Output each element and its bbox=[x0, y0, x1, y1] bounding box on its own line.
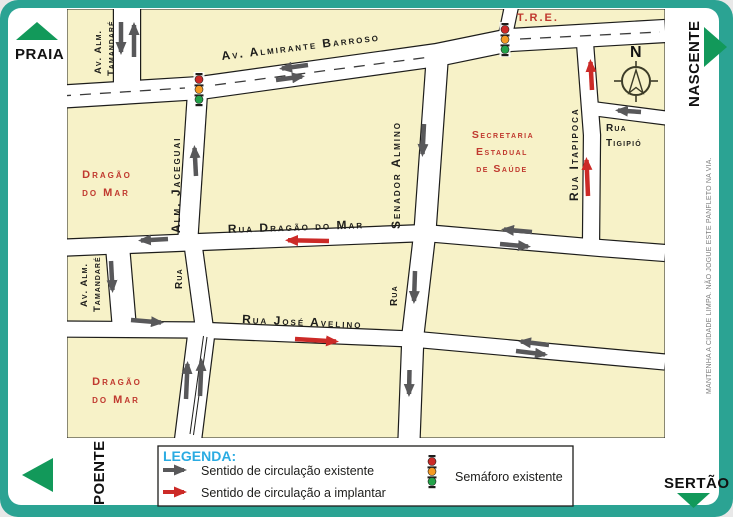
arrow-almino-mid-down-icon bbox=[414, 271, 415, 301]
legend-item-implant: Sentido de circulação a implantar bbox=[201, 486, 386, 500]
arrow-dragao-west-left-icon bbox=[141, 239, 168, 241]
arrow-tigipio-left-icon bbox=[618, 111, 641, 113]
arrow-dragao-east-left-icon bbox=[504, 230, 532, 233]
arrow-itapipoca-red-up2-icon bbox=[587, 160, 589, 196]
street-label-jaceguai: Alm. Jaceguai bbox=[169, 137, 183, 233]
map-canvas: N Av. Almirante Barroso Rua Dragão do Ma… bbox=[0, 0, 733, 517]
place-label-dragao-sul-1: Dragão bbox=[92, 376, 142, 388]
arrow-jaceguai-up-icon bbox=[195, 148, 197, 176]
margin-note: MANTENHA A CIDADE LIMPA. NÃO JOGUE ESTE … bbox=[704, 157, 713, 394]
street-label-tigipio-1: Rua bbox=[606, 123, 627, 134]
place-label-secretaria-2: Estadual bbox=[476, 146, 528, 158]
legend-title: LEGENDA: bbox=[163, 448, 236, 464]
place-label-secretaria-1: Secretaria bbox=[472, 129, 534, 141]
street-label-tamandare-mid-2: Tamandaré bbox=[92, 256, 103, 312]
arrow-itapipoca-red-up1-icon bbox=[591, 62, 593, 90]
arrow-divided-up-left-icon bbox=[186, 364, 188, 399]
street-label-almino-rua: Rua bbox=[389, 285, 400, 306]
traffic-light-icon bbox=[194, 72, 205, 107]
place-label-dragao-sul-2: do Mar bbox=[92, 394, 140, 406]
arrow-divided-up-right-icon bbox=[200, 361, 202, 396]
arrow-avelino-red-right-icon bbox=[295, 339, 336, 342]
street-label-jaceguai-rua: Rua bbox=[174, 268, 185, 289]
direction-label-sertao: SERTÃO bbox=[664, 474, 730, 492]
traffic-light-icon bbox=[500, 22, 511, 57]
street-label-senador-almino: Senador Almino bbox=[389, 121, 403, 229]
legend-item-semaforo: Semáforo existente bbox=[455, 470, 563, 484]
direction-label-poente: POENTE bbox=[91, 440, 108, 505]
street-label-tigipio-2: Tigipió bbox=[606, 138, 642, 149]
place-label-dragao-norte-1: Dragão bbox=[82, 169, 132, 181]
street-label-tamandare-mid-1: Av. Alm. bbox=[79, 263, 90, 307]
compass-north-label: N bbox=[630, 44, 642, 61]
arrow-dragao-red-left-icon bbox=[288, 240, 329, 241]
street-label-tamandare-top-2: Tamandaré bbox=[106, 20, 117, 76]
street-label-itapipoca: Rua Itapipoca bbox=[567, 107, 581, 201]
arrow-avelino-west-right-icon bbox=[131, 320, 161, 323]
arrow-almino-lower-down-icon bbox=[409, 370, 410, 394]
direction-label-praia: PRAIA bbox=[15, 46, 64, 63]
arrow-almino-down-icon bbox=[423, 124, 425, 154]
legend-box: LEGENDA: Sentido de circulação existente… bbox=[158, 446, 573, 506]
street-label-tre: T.R.E. bbox=[517, 12, 559, 24]
map-area: N Av. Almirante Barroso Rua Dragão do Ma… bbox=[55, 4, 666, 440]
traffic-light-icon bbox=[427, 454, 438, 489]
street-label-tamandare-top-1: Av. Alm. bbox=[93, 30, 104, 74]
place-label-secretaria-3: de Saúde bbox=[476, 163, 527, 175]
arrow-dragao-east-right-icon bbox=[500, 244, 528, 247]
direction-label-nascente: NASCENTE bbox=[686, 20, 703, 107]
place-label-dragao-norte-2: do Mar bbox=[82, 187, 130, 199]
traffic-circulation-flyer: N Av. Almirante Barroso Rua Dragão do Ma… bbox=[0, 0, 733, 517]
arrow-tamandare-mid-down-icon bbox=[111, 261, 113, 290]
legend-item-existing: Sentido de circulação existente bbox=[201, 464, 374, 478]
